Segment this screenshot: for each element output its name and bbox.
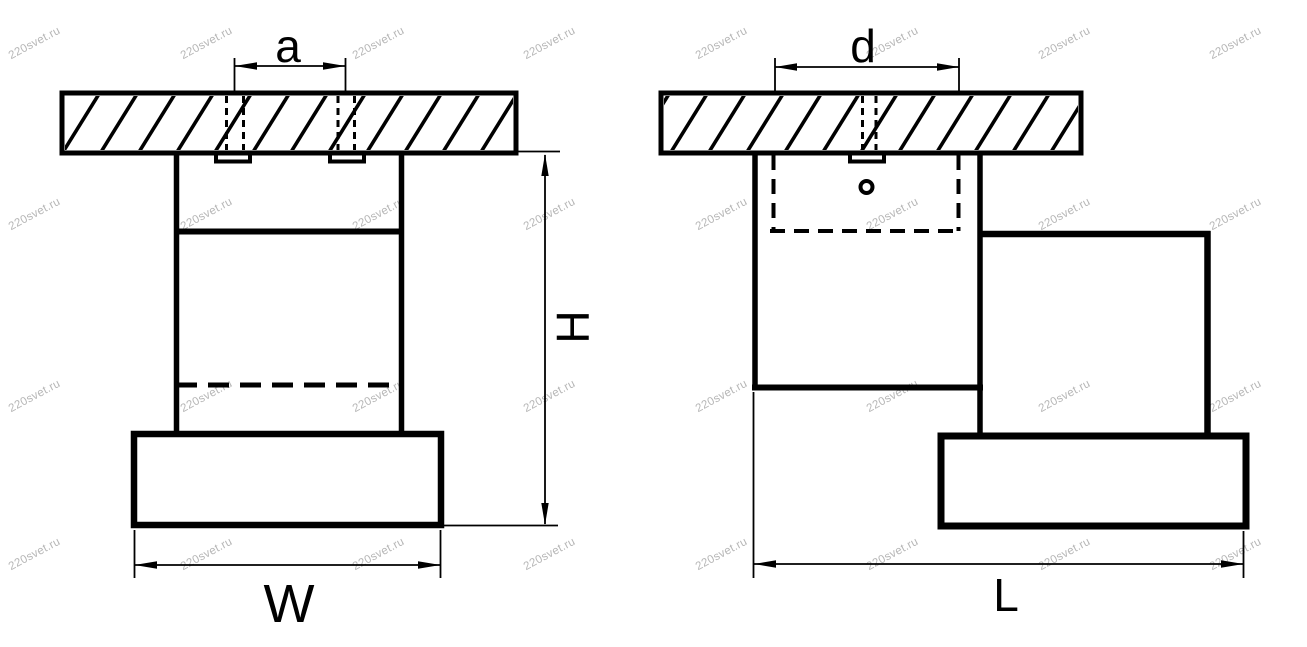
dim-d-arrow-right bbox=[937, 63, 959, 70]
watermark-text: 220svet.ru bbox=[522, 25, 578, 62]
lamp-head-front bbox=[134, 434, 441, 525]
dim-a-arrow-left bbox=[235, 62, 258, 69]
lamp-head-side bbox=[941, 436, 1246, 526]
dim-w-arrow-left bbox=[135, 561, 158, 568]
watermark-text: 220svet.ru bbox=[7, 536, 63, 573]
watermark-text: 220svet.ru bbox=[179, 536, 235, 573]
watermark-text: 220svet.ru bbox=[694, 536, 750, 573]
watermark-text: 220svet.ru bbox=[694, 196, 750, 233]
dim-h-label: H bbox=[547, 310, 599, 343]
dim-a-arrow-right bbox=[323, 62, 346, 69]
watermark-text: 220svet.ru bbox=[7, 25, 63, 62]
ceiling-hatch-side bbox=[664, 96, 1078, 150]
dim-d-arrow-left bbox=[775, 63, 797, 70]
watermark-text: 220svet.ru bbox=[1037, 25, 1093, 62]
ceiling-hatch bbox=[65, 96, 513, 150]
dim-h-arrow-top bbox=[541, 154, 548, 176]
watermark-text: 220svet.ru bbox=[351, 25, 407, 62]
watermark-text: 220svet.ru bbox=[1208, 536, 1264, 573]
watermark-text: 220svet.ru bbox=[1037, 378, 1093, 415]
watermark-text: 220svet.ru bbox=[351, 196, 407, 233]
mounting-tab-right bbox=[328, 153, 366, 164]
watermark-text: 220svet.ru bbox=[7, 378, 63, 415]
watermark-text: 220svet.ru bbox=[179, 25, 235, 62]
watermark-text: 220svet.ru bbox=[1037, 196, 1093, 233]
watermark-text: 220svet.ru bbox=[351, 536, 407, 573]
watermark-text: 220svet.ru bbox=[1208, 378, 1264, 415]
dim-w-arrow-right bbox=[418, 561, 441, 568]
dim-d-label: d bbox=[850, 20, 876, 72]
screw-hole bbox=[861, 181, 873, 193]
dim-w-label: W bbox=[264, 574, 315, 634]
dim-l-label: L bbox=[993, 569, 1019, 621]
mounting-tab-center bbox=[848, 153, 886, 164]
watermark-text: 220svet.ru bbox=[865, 378, 921, 415]
watermark-text: 220svet.ru bbox=[865, 536, 921, 573]
watermark-text: 220svet.ru bbox=[7, 196, 63, 233]
technical-drawing-page: 220svet.ru220svet.ru220svet.ru220svet.ru… bbox=[0, 0, 1307, 647]
watermark-text: 220svet.ru bbox=[522, 196, 578, 233]
dim-a-label: a bbox=[275, 20, 301, 72]
watermark-text: 220svet.ru bbox=[865, 196, 921, 233]
watermark-text: 220svet.ru bbox=[694, 378, 750, 415]
watermark-text: 220svet.ru bbox=[1208, 25, 1264, 62]
dimension-drawing-canvas: 220svet.ru220svet.ru220svet.ru220svet.ru… bbox=[0, 0, 1307, 647]
dim-h-arrow-bottom bbox=[541, 503, 548, 525]
watermark-text: 220svet.ru bbox=[179, 196, 235, 233]
dim-l-arrow-left bbox=[754, 560, 777, 567]
watermark-text: 220svet.ru bbox=[694, 25, 750, 62]
side-view: d bbox=[661, 20, 1246, 621]
watermark-text: 220svet.ru bbox=[522, 378, 578, 415]
front-view: a W bbox=[62, 20, 599, 634]
watermark-text: 220svet.ru bbox=[1208, 196, 1264, 233]
watermark-text: 220svet.ru bbox=[522, 536, 578, 573]
watermark-text: 220svet.ru bbox=[1037, 536, 1093, 573]
mounting-tab-left bbox=[214, 153, 252, 164]
